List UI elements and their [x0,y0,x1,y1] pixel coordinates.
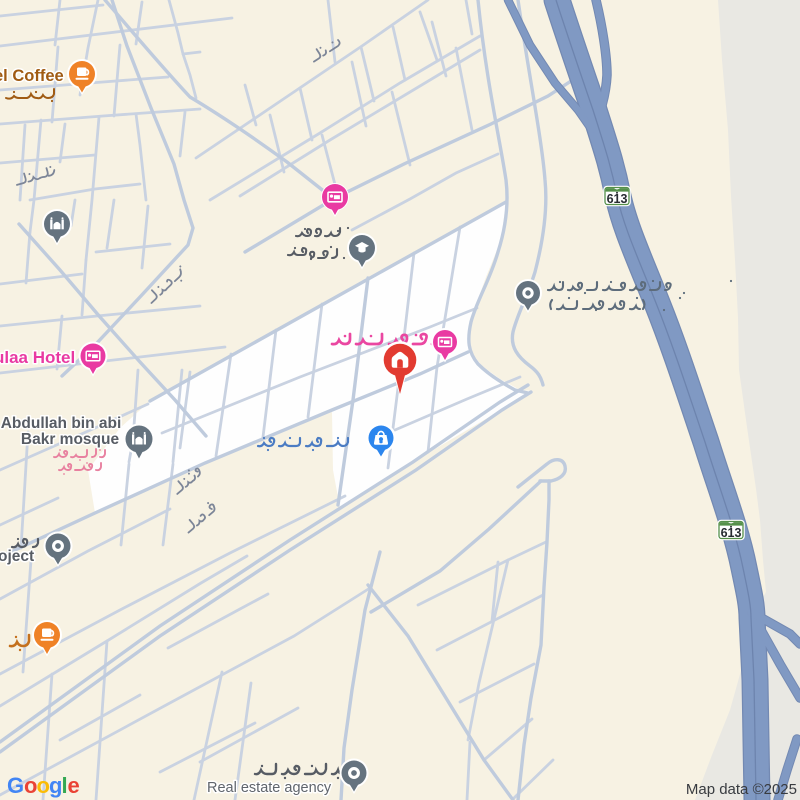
svg-text:Abdullah bin abi: Abdullah bin abi [1,415,122,432]
svg-text:Real estate agency: Real estate agency [207,780,332,796]
svg-text:o: o [37,773,50,798]
svg-text:G: G [7,773,24,798]
svg-text:Map data ©2025: Map data ©2025 [686,781,797,798]
svg-text:oject: oject [0,548,34,565]
svg-text:g: g [49,773,62,798]
svg-text:Bakr mosque: Bakr mosque [21,431,120,448]
svg-text:613: 613 [607,192,628,206]
svg-text:e: e [68,773,80,798]
svg-text:o: o [24,773,37,798]
svg-text:ulaa Hotel: ulaa Hotel [0,348,75,367]
svg-text:el Coffee: el Coffee [0,67,64,85]
svg-text:613: 613 [721,526,742,540]
